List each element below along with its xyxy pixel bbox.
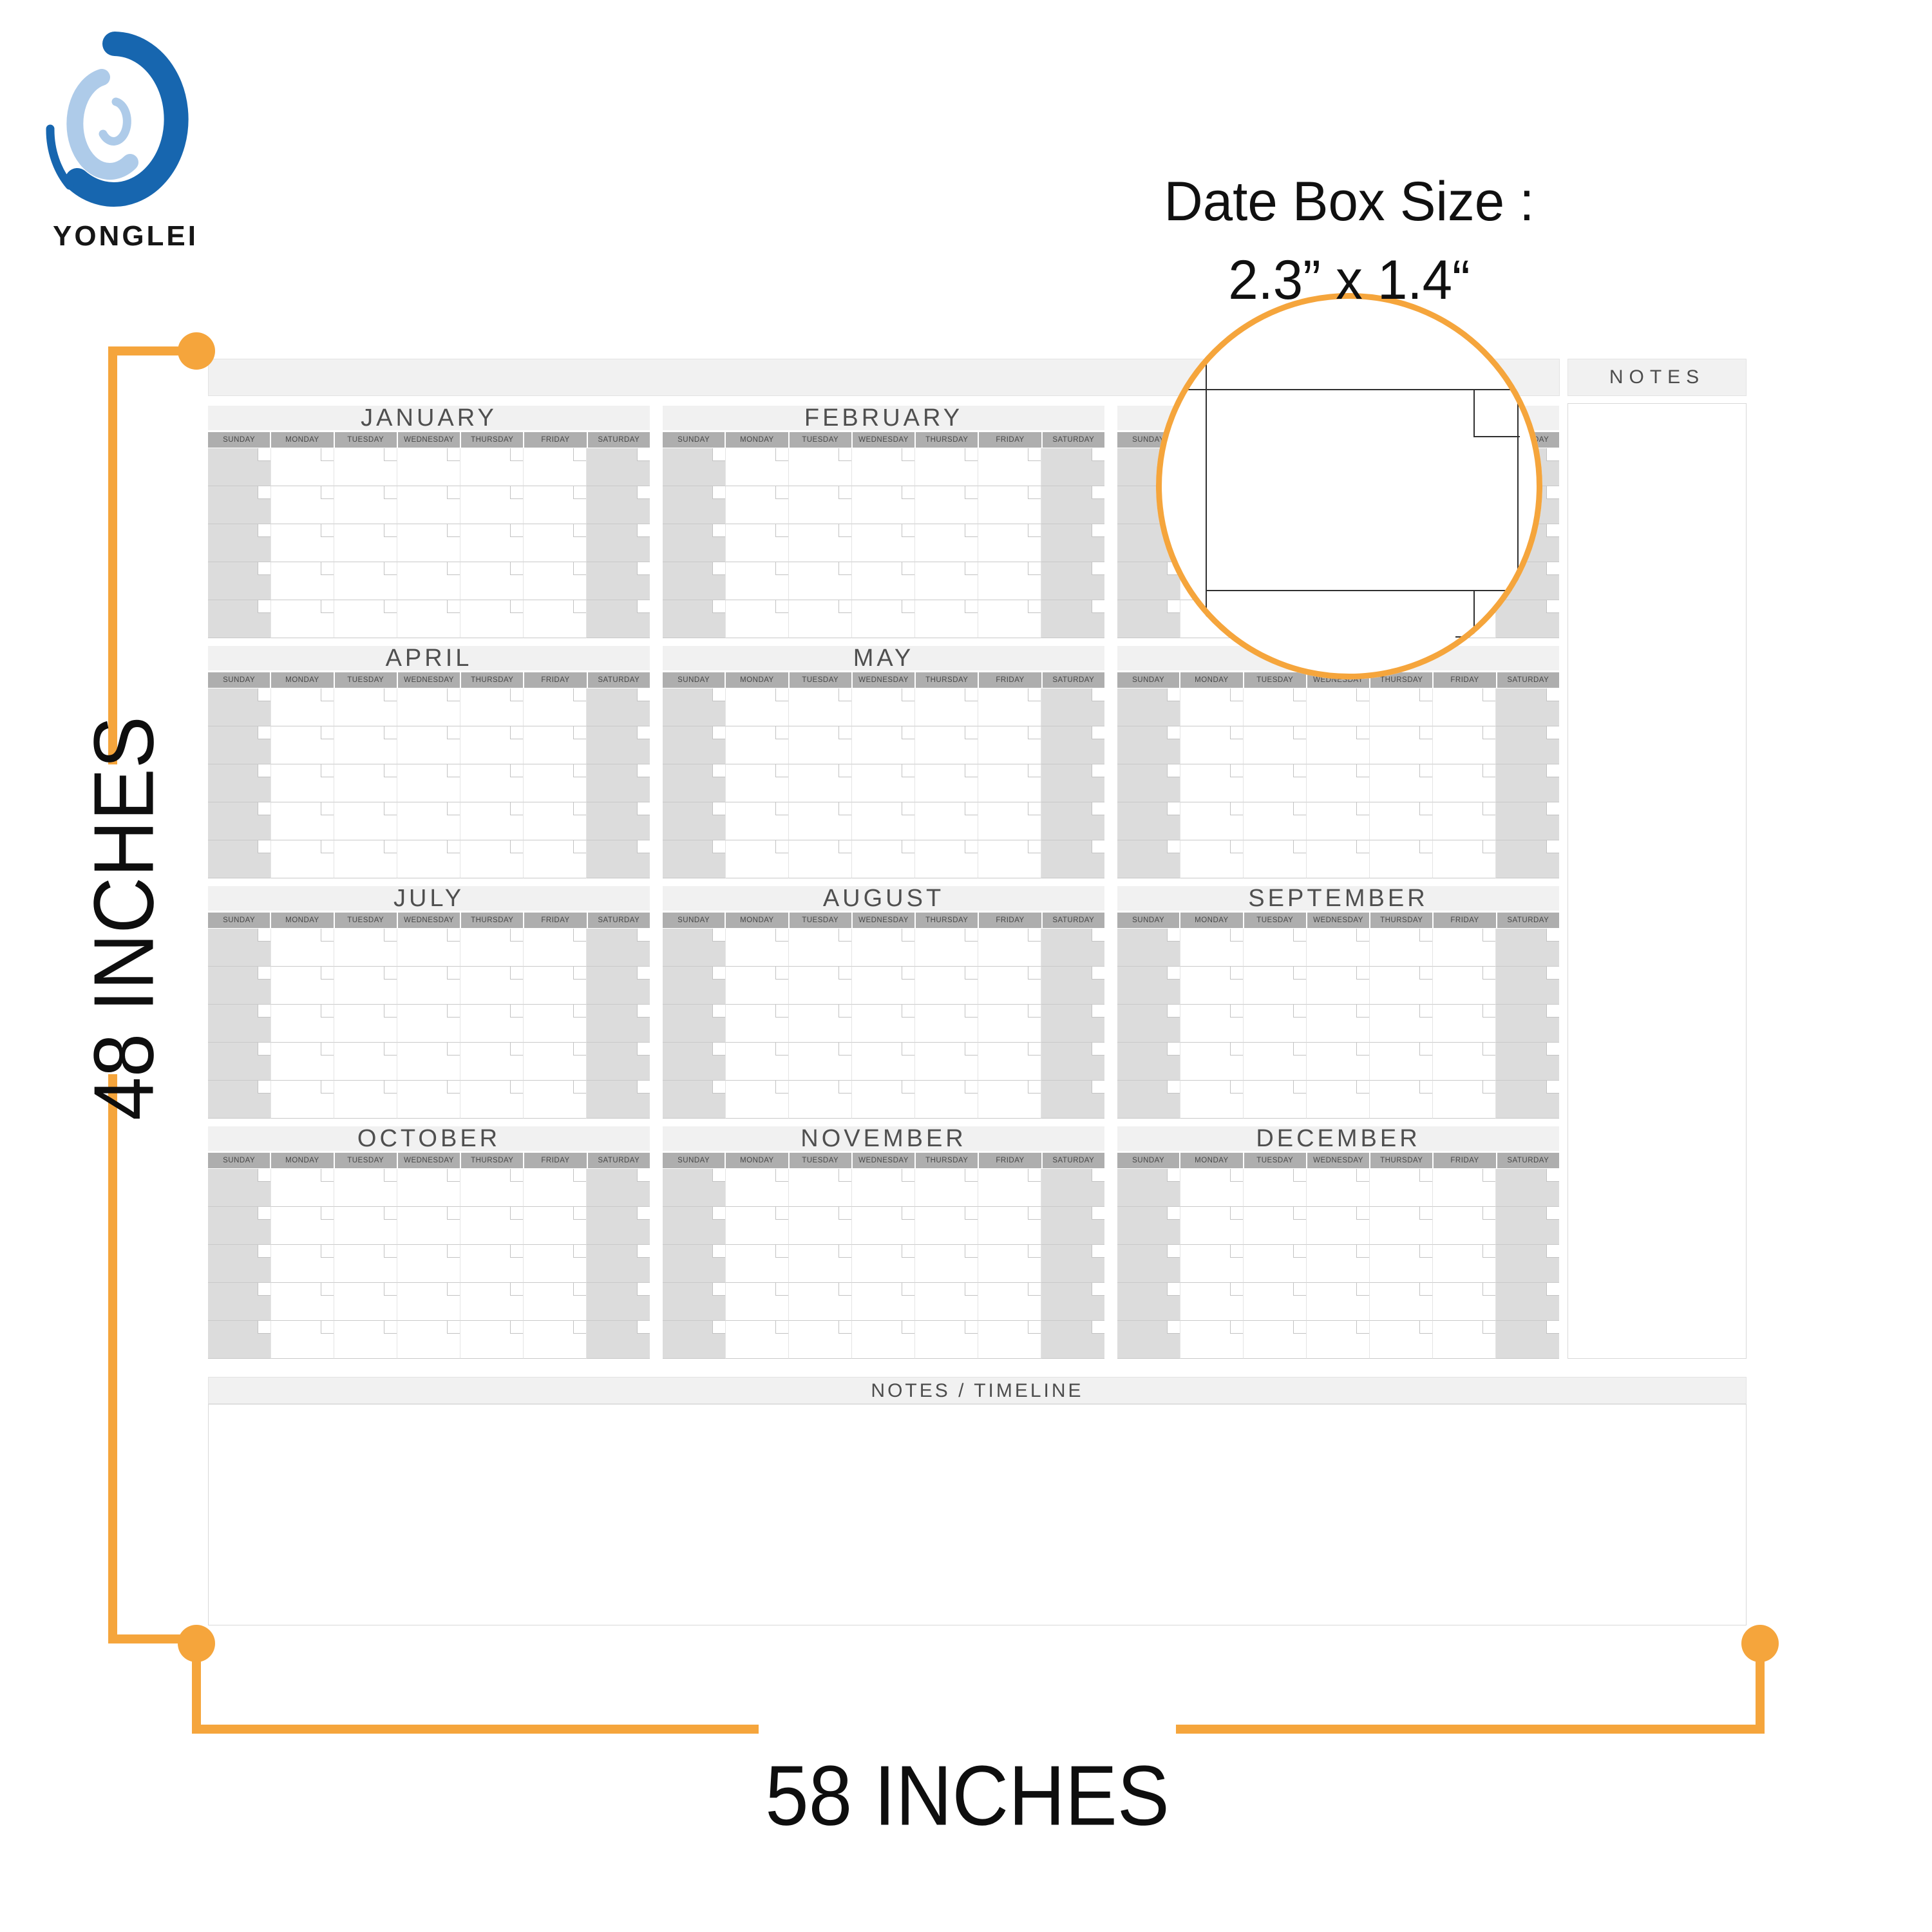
date-number-box <box>902 1245 914 1258</box>
date-number-box <box>1092 764 1104 777</box>
date-number-box <box>321 600 334 613</box>
date-cell <box>852 929 915 967</box>
date-number-box <box>712 524 725 537</box>
date-cell <box>208 967 271 1005</box>
date-cell <box>397 1043 460 1081</box>
date-cell <box>1117 1321 1180 1359</box>
date-number-box <box>1546 688 1559 701</box>
date-number-box <box>447 1245 460 1258</box>
date-number-box <box>1293 1043 1306 1056</box>
date-number-box <box>258 1005 270 1018</box>
date-number-box <box>1419 802 1432 815</box>
date-cell <box>663 524 726 562</box>
date-cell <box>1041 1321 1104 1359</box>
date-cell <box>271 1081 334 1119</box>
height-dimension-label: 48 INCHES <box>75 716 173 1121</box>
date-number-box <box>1230 1321 1243 1334</box>
date-number-box <box>1092 1283 1104 1296</box>
date-cell <box>978 1207 1041 1245</box>
date-number-box <box>258 688 270 701</box>
date-number-box <box>712 1081 725 1094</box>
date-number-box <box>573 726 586 739</box>
date-cell <box>726 486 789 524</box>
weekday-label: FRIDAY <box>524 432 586 448</box>
date-number-box <box>965 929 978 942</box>
date-cell <box>1433 1081 1496 1119</box>
date-cell <box>587 1283 650 1321</box>
date-number-box <box>1167 688 1180 701</box>
date-cell <box>663 1321 726 1359</box>
date-number-box <box>712 1043 725 1056</box>
date-number-box <box>637 1283 650 1296</box>
date-cell <box>524 1245 587 1283</box>
weekday-label: MONDAY <box>271 432 333 448</box>
date-number-box <box>902 688 914 701</box>
date-number-box <box>775 929 788 942</box>
date-number-box <box>1482 1005 1495 1018</box>
date-number-box <box>775 967 788 980</box>
date-number-box <box>258 1043 270 1056</box>
date-cell <box>1041 1283 1104 1321</box>
date-number-box <box>573 1207 586 1220</box>
date-cell <box>1370 764 1433 802</box>
date-cell <box>1041 840 1104 878</box>
date-number-box <box>1230 1283 1243 1296</box>
date-cell <box>271 929 334 967</box>
weekday-label: SUNDAY <box>1117 672 1179 688</box>
date-number-box <box>637 967 650 980</box>
date-cell <box>915 1207 978 1245</box>
date-cell <box>334 929 397 967</box>
weekday-label: WEDNESDAY <box>398 1153 460 1168</box>
date-number-box <box>1482 967 1495 980</box>
date-number-box <box>1419 1005 1432 1018</box>
month-title: FEBRUARY <box>663 406 1104 430</box>
date-cell <box>1244 929 1307 967</box>
date-cell <box>1117 929 1180 967</box>
date-number-box <box>902 486 914 499</box>
date-number-box <box>1230 726 1243 739</box>
date-number-box <box>775 1081 788 1094</box>
date-number-box <box>384 688 397 701</box>
date-cell <box>460 840 524 878</box>
date-cell <box>663 967 726 1005</box>
date-number-box <box>965 1321 978 1334</box>
date-cell <box>1433 1321 1496 1359</box>
date-cell <box>789 1283 852 1321</box>
date-number-box <box>1092 448 1104 461</box>
date-number-box <box>775 726 788 739</box>
date-number-box <box>384 764 397 777</box>
date-cell <box>397 1207 460 1245</box>
date-cell <box>208 1081 271 1119</box>
date-number-box <box>573 1169 586 1182</box>
date-cell <box>663 1245 726 1283</box>
date-number-box <box>902 1081 914 1094</box>
date-number-box <box>1482 1207 1495 1220</box>
date-cell <box>978 1005 1041 1043</box>
weekday-label: TUESDAY <box>335 432 397 448</box>
date-number-box <box>637 929 650 942</box>
date-cell <box>208 1169 271 1207</box>
date-cell <box>1496 1283 1559 1321</box>
date-number-box <box>1028 1283 1041 1296</box>
date-number-box <box>965 726 978 739</box>
date-cell <box>789 802 852 840</box>
weekday-row: SUNDAYMONDAYTUESDAYWEDNESDAYTHURSDAYFRID… <box>208 672 650 688</box>
date-cell <box>524 1321 587 1359</box>
date-number-box <box>1230 1169 1243 1182</box>
date-number-box <box>1167 764 1180 777</box>
weekday-label: TUESDAY <box>790 672 851 688</box>
date-cell <box>334 802 397 840</box>
date-cell <box>208 1043 271 1081</box>
month-grid <box>208 688 650 878</box>
date-number-box <box>1230 764 1243 777</box>
date-cell <box>978 524 1041 562</box>
date-number-box <box>384 448 397 461</box>
date-cell <box>663 929 726 967</box>
date-number-box <box>1482 1081 1495 1094</box>
date-cell <box>726 1321 789 1359</box>
date-cell <box>524 840 587 878</box>
date-cell <box>663 1283 726 1321</box>
date-number-box <box>1028 1005 1041 1018</box>
date-number-box <box>258 486 270 499</box>
date-number-box <box>258 802 270 815</box>
month-grid <box>208 448 650 638</box>
month-block: MAY SUNDAYMONDAYTUESDAYWEDNESDAYTHURSDAY… <box>663 643 1104 878</box>
date-cell <box>1117 967 1180 1005</box>
date-cell <box>271 600 334 638</box>
date-cell <box>1041 1005 1104 1043</box>
month-block: DECEMBER SUNDAYMONDAYTUESDAYWEDNESDAYTHU… <box>1117 1124 1559 1359</box>
date-cell <box>915 929 978 967</box>
date-number-box <box>510 802 523 815</box>
date-number-box <box>1546 726 1559 739</box>
date-number-box <box>712 1169 725 1182</box>
date-cell <box>1496 802 1559 840</box>
date-cell <box>1180 1321 1244 1359</box>
date-cell <box>397 764 460 802</box>
date-cell <box>1370 1207 1433 1245</box>
date-number-box <box>902 1005 914 1018</box>
date-cell <box>1433 1043 1496 1081</box>
date-cell <box>915 967 978 1005</box>
date-number-box <box>1230 1043 1243 1056</box>
date-number-box <box>902 1321 914 1334</box>
date-cell <box>978 929 1041 967</box>
date-number-box <box>637 1005 650 1018</box>
date-cell <box>1244 1169 1307 1207</box>
date-number-box <box>510 1245 523 1258</box>
date-number-box <box>965 840 978 853</box>
date-number-box <box>1419 1207 1432 1220</box>
date-cell <box>663 802 726 840</box>
date-number-box <box>1167 600 1180 613</box>
date-number-box <box>1167 1005 1180 1018</box>
date-number-box <box>1167 726 1180 739</box>
date-cell <box>1370 688 1433 726</box>
date-cell <box>587 524 650 562</box>
date-number-box <box>902 840 914 853</box>
date-number-box <box>1546 600 1559 613</box>
date-number-box <box>1546 1207 1559 1220</box>
date-cell <box>1496 600 1559 638</box>
date-cell <box>1041 688 1104 726</box>
date-cell <box>397 840 460 878</box>
date-cell <box>271 562 334 600</box>
date-number-box <box>902 1207 914 1220</box>
date-cell <box>334 967 397 1005</box>
date-number-box <box>1028 726 1041 739</box>
date-number-box <box>775 486 788 499</box>
callout-title: Date Box Size : <box>1124 162 1574 241</box>
date-cell <box>460 1207 524 1245</box>
date-number-box <box>258 1207 270 1220</box>
date-number-box <box>384 840 397 853</box>
date-cell <box>789 764 852 802</box>
date-cell <box>460 1321 524 1359</box>
date-number-box <box>965 562 978 575</box>
date-number-box <box>902 1169 914 1182</box>
date-number-box <box>1546 1081 1559 1094</box>
date-number-box <box>775 802 788 815</box>
date-number-box <box>838 1081 851 1094</box>
date-number-box <box>510 726 523 739</box>
date-number-box <box>1419 1321 1432 1334</box>
dim-dot-bottom-left <box>178 1625 215 1662</box>
date-cell <box>271 1169 334 1207</box>
date-number-box <box>573 524 586 537</box>
date-cell <box>587 967 650 1005</box>
date-cell <box>397 688 460 726</box>
date-number-box <box>775 1005 788 1018</box>
date-cell <box>271 1043 334 1081</box>
date-cell <box>1180 1169 1244 1207</box>
date-number-box <box>1167 802 1180 815</box>
date-cell <box>789 486 852 524</box>
date-cell <box>663 840 726 878</box>
date-number-box <box>1230 688 1243 701</box>
date-number-box <box>1293 1321 1306 1334</box>
weekday-label: MONDAY <box>726 432 788 448</box>
date-number-box <box>1230 967 1243 980</box>
date-number-box <box>902 448 914 461</box>
date-number-box <box>712 1245 725 1258</box>
date-cell <box>1180 1005 1244 1043</box>
date-number-box <box>1546 486 1559 499</box>
month-block: JULY SUNDAYMONDAYTUESDAYWEDNESDAYTHURSDA… <box>208 884 650 1119</box>
date-number-box <box>321 1169 334 1182</box>
date-cell <box>726 1169 789 1207</box>
weekday-label: THURSDAY <box>1370 913 1432 928</box>
date-number-box <box>1546 1245 1559 1258</box>
date-number-box <box>447 600 460 613</box>
month-grid <box>663 688 1104 878</box>
date-number-box <box>902 1043 914 1056</box>
date-number-box <box>510 1321 523 1334</box>
date-cell <box>1496 1081 1559 1119</box>
date-cell <box>1041 726 1104 764</box>
date-number-box <box>838 1207 851 1220</box>
date-cell <box>1370 967 1433 1005</box>
date-number-box <box>510 524 523 537</box>
date-cell <box>852 967 915 1005</box>
date-number-box <box>838 967 851 980</box>
date-number-box <box>1167 840 1180 853</box>
date-cell <box>915 688 978 726</box>
date-cell <box>978 1169 1041 1207</box>
date-cell <box>1117 764 1180 802</box>
date-number-box <box>1028 840 1041 853</box>
weekday-label: THURSDAY <box>461 672 523 688</box>
month-title: AUGUST <box>663 886 1104 911</box>
date-cell <box>208 448 271 486</box>
date-number-box <box>321 562 334 575</box>
date-number-box <box>1356 1081 1369 1094</box>
weekday-label: SATURDAY <box>1043 672 1104 688</box>
date-cell <box>726 764 789 802</box>
date-cell <box>587 1207 650 1245</box>
date-number-box <box>965 802 978 815</box>
date-cell <box>524 1207 587 1245</box>
date-cell <box>1307 1043 1370 1081</box>
date-number-box <box>258 1245 270 1258</box>
date-cell <box>208 802 271 840</box>
date-number-box <box>1230 802 1243 815</box>
date-number-box <box>902 802 914 815</box>
weekday-label: WEDNESDAY <box>853 672 914 688</box>
date-cell <box>271 1005 334 1043</box>
date-cell <box>1496 1245 1559 1283</box>
callout-size: 2.3” x 1.4“ <box>1124 241 1574 319</box>
date-number-box <box>838 688 851 701</box>
date-number-box <box>838 929 851 942</box>
weekday-label: THURSDAY <box>916 913 978 928</box>
weekday-label: FRIDAY <box>979 432 1041 448</box>
date-cell <box>852 1081 915 1119</box>
date-number-box <box>637 1169 650 1182</box>
weekday-label: SATURDAY <box>588 432 650 448</box>
date-number-box <box>775 1245 788 1258</box>
date-cell <box>334 1043 397 1081</box>
month-title: MAY <box>663 646 1104 670</box>
date-number-box <box>1546 1169 1559 1182</box>
date-cell <box>978 764 1041 802</box>
weekday-label: FRIDAY <box>1434 1153 1495 1168</box>
date-number-box <box>258 840 270 853</box>
date-cell <box>1307 726 1370 764</box>
date-cell <box>271 1283 334 1321</box>
weekday-label: TUESDAY <box>335 913 397 928</box>
date-cell <box>1433 967 1496 1005</box>
date-cell <box>663 1081 726 1119</box>
date-number-box <box>1356 764 1369 777</box>
date-number-box <box>637 802 650 815</box>
date-cell <box>915 764 978 802</box>
month-block: FEBRUARY SUNDAYMONDAYTUESDAYWEDNESDAYTHU… <box>663 403 1104 638</box>
date-number-box <box>712 1005 725 1018</box>
weekday-label: MONDAY <box>1180 1153 1242 1168</box>
date-cell <box>460 1169 524 1207</box>
date-cell <box>789 1005 852 1043</box>
weekday-label: WEDNESDAY <box>398 672 460 688</box>
date-number-box <box>1293 1169 1306 1182</box>
date-cell <box>663 1207 726 1245</box>
month-grid <box>208 1169 650 1359</box>
date-cell <box>915 600 978 638</box>
weekday-label: SUNDAY <box>1117 913 1179 928</box>
date-number-box <box>510 562 523 575</box>
date-cell <box>726 600 789 638</box>
date-cell <box>1433 1005 1496 1043</box>
date-cell <box>852 1043 915 1081</box>
weekday-row: SUNDAYMONDAYTUESDAYWEDNESDAYTHURSDAYFRID… <box>208 432 650 448</box>
date-number-box <box>1167 1207 1180 1220</box>
date-number-box <box>384 967 397 980</box>
date-cell <box>524 967 587 1005</box>
date-number-box <box>1092 929 1104 942</box>
weekday-label: SATURDAY <box>1497 913 1559 928</box>
date-cell <box>1433 764 1496 802</box>
date-cell <box>397 726 460 764</box>
date-cell <box>1117 1245 1180 1283</box>
date-cell <box>1041 1245 1104 1283</box>
month-title: APRIL <box>208 646 650 670</box>
weekday-row: SUNDAYMONDAYTUESDAYWEDNESDAYTHURSDAYFRID… <box>663 432 1104 448</box>
date-number-box <box>1356 1321 1369 1334</box>
date-cell <box>726 1283 789 1321</box>
date-number-box <box>838 448 851 461</box>
date-number-box <box>321 929 334 942</box>
date-cell <box>1041 1169 1104 1207</box>
date-cell <box>1244 1283 1307 1321</box>
weekday-label: FRIDAY <box>1434 672 1495 688</box>
month-title: NOVEMBER <box>663 1126 1104 1151</box>
weekday-label: SATURDAY <box>1497 1153 1559 1168</box>
date-number-box <box>637 1081 650 1094</box>
weekday-label: TUESDAY <box>790 913 851 928</box>
date-cell <box>1117 688 1180 726</box>
weekday-label: TUESDAY <box>1244 913 1306 928</box>
date-number-box <box>965 448 978 461</box>
date-cell <box>789 448 852 486</box>
date-number-box <box>1092 1321 1104 1334</box>
notes-writing-area <box>1567 403 1747 1359</box>
date-cell <box>852 448 915 486</box>
date-cell <box>1496 764 1559 802</box>
dim-line-left-v-lower <box>108 1074 117 1643</box>
date-cell <box>1180 688 1244 726</box>
date-number-box <box>573 600 586 613</box>
date-cell <box>1041 802 1104 840</box>
date-number-box <box>1482 688 1495 701</box>
date-cell <box>789 726 852 764</box>
date-cell <box>1307 1245 1370 1283</box>
width-dimension-label: 58 INCHES <box>765 1747 1170 1844</box>
date-number-box <box>1546 967 1559 980</box>
date-number-box <box>1419 1169 1432 1182</box>
date-number-box <box>637 688 650 701</box>
date-cell <box>1180 1207 1244 1245</box>
date-number-box <box>1028 1245 1041 1258</box>
date-cell <box>852 1283 915 1321</box>
date-number-box <box>1419 967 1432 980</box>
date-number-box <box>321 1005 334 1018</box>
date-cell <box>789 840 852 878</box>
date-cell <box>397 1005 460 1043</box>
